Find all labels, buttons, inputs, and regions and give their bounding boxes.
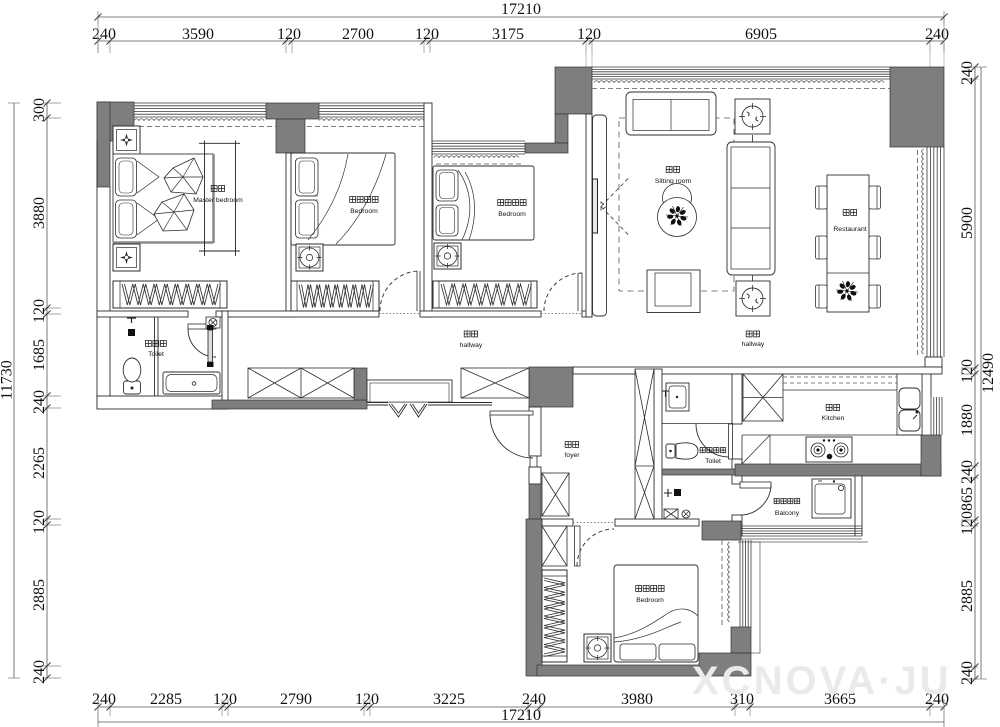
svg-text:Kitchen: Kitchen [822,415,845,422]
svg-text:120: 120 [577,26,601,43]
svg-text:hallway: hallway [460,342,483,349]
svg-text:240: 240 [959,460,976,484]
svg-text:120: 120 [355,691,379,708]
svg-text:Bedroom: Bedroom [350,208,378,215]
svg-text:865: 865 [959,487,976,511]
svg-text:3980: 3980 [621,691,653,708]
svg-text:120: 120 [213,691,237,708]
svg-text:17210: 17210 [501,1,541,18]
svg-text:3880: 3880 [31,197,48,229]
svg-text:2885: 2885 [959,580,976,612]
svg-text:240: 240 [959,61,976,85]
svg-text:Toilet: Toilet [705,458,721,465]
svg-text:240: 240 [31,660,48,684]
svg-text:120: 120 [277,26,301,43]
svg-text:120: 120 [959,359,976,383]
svg-text:240: 240 [925,26,949,43]
svg-text:2265: 2265 [31,447,48,479]
svg-text:2885: 2885 [31,579,48,611]
svg-text:12490: 12490 [980,353,997,393]
svg-text:120: 120 [31,299,48,323]
svg-text:Bedroom: Bedroom [636,597,664,604]
svg-text:240: 240 [522,691,546,708]
svg-text:120: 120 [31,510,48,534]
svg-text:240: 240 [92,26,116,43]
svg-text:240: 240 [959,661,976,685]
svg-text:300: 300 [31,98,48,122]
svg-text:Sitting room: Sitting room [655,178,692,185]
svg-text:Balcony: Balcony [775,510,800,517]
svg-text:120: 120 [415,26,439,43]
svg-text:3175: 3175 [492,26,524,43]
svg-text:Toilet: Toilet [148,351,164,358]
svg-text:2790: 2790 [280,691,312,708]
svg-text:Master bedroom: Master bedroom [193,197,243,204]
svg-text:foyer: foyer [564,452,580,459]
svg-text:17210: 17210 [501,707,541,724]
svg-text:2700: 2700 [342,26,374,43]
svg-text:11730: 11730 [0,360,16,399]
svg-text:2285: 2285 [150,691,182,708]
svg-text:1880: 1880 [959,404,976,436]
svg-text:240: 240 [92,691,116,708]
svg-text:3590: 3590 [182,26,214,43]
svg-text:Restaurant: Restaurant [833,226,866,233]
svg-text:6905: 6905 [745,26,777,43]
svg-text:XCNOVA·JU: XCNOVA·JU [692,659,952,703]
svg-text:3225: 3225 [433,691,465,708]
svg-text:hallway: hallway [742,341,765,348]
svg-text:Bedroom: Bedroom [498,211,526,218]
svg-text:120: 120 [959,511,976,535]
svg-text:240: 240 [31,390,48,414]
svg-text:1685: 1685 [31,339,48,371]
svg-text:5900: 5900 [959,207,976,239]
